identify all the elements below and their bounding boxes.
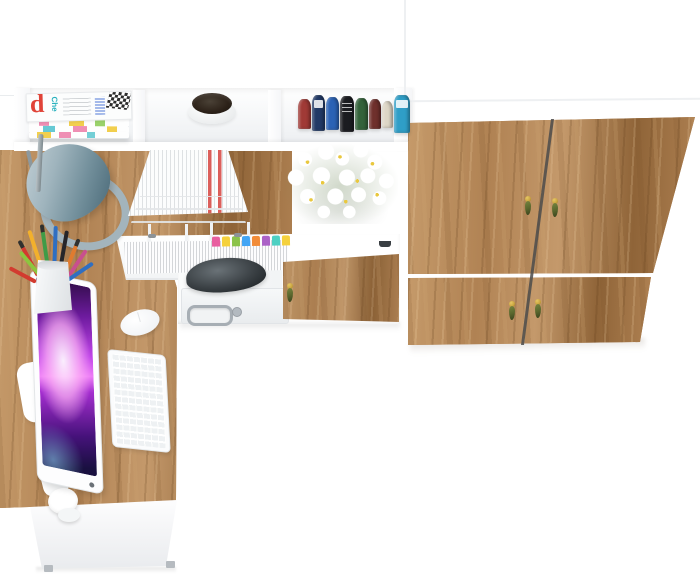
index-tab [212,237,220,247]
book [298,99,311,129]
daisy-bouquet [282,138,398,224]
shelf-peg [234,233,242,237]
shelf-divider [133,90,145,150]
monitor-stand-foot [58,508,80,522]
book [369,99,381,129]
book [312,95,326,131]
shelf-peg [148,234,156,238]
wire-document-tray [126,196,250,236]
magazine-page-edges [29,132,129,139]
book [355,98,368,130]
desk-foot [44,565,53,572]
wardrobe-door-handle [524,196,532,216]
index-tab [232,236,240,246]
hutch-top-panel [0,0,418,96]
cable-notch [379,241,391,247]
printer-handle [187,305,233,326]
shelf-divider [268,90,281,150]
handle-drop [535,304,541,318]
book [326,97,339,130]
magazine-cover-word: Che [50,96,59,111]
index-tab [242,236,250,246]
magazine-cover-textlines [63,98,91,116]
wardrobe-door-handle [534,299,542,319]
furniture-product-image: d Che [0,0,700,574]
index-tab [252,236,260,246]
potted-plant [192,93,232,114]
wardrobe-top-panel [404,0,700,124]
book [340,96,354,132]
index-tab [282,235,290,245]
keyboard [107,349,171,453]
magazine-cover-textlines [95,96,105,114]
magazine-stack: d Che [26,92,132,140]
index-tabs [212,235,290,248]
handle-drop [525,201,531,215]
panel-seam-line [404,0,406,96]
handle-drop [552,203,558,217]
desk-foot [166,561,175,568]
drawer-front [283,252,399,322]
pencil-cup [34,260,72,314]
magazine-cover: d Che [26,91,133,123]
book [382,101,394,128]
magazine-checker-pattern [106,91,132,110]
book-row [298,95,410,137]
index-tab [222,236,230,246]
index-tab [272,235,280,245]
wardrobe-upper-doors [408,117,700,275]
drawer-handle [286,283,294,303]
wardrobe-door-handle [551,198,559,218]
book [394,95,410,133]
printer-button [232,307,242,317]
index-tab [262,236,270,246]
magazine-cover-letter: d [30,91,45,119]
handle-drop [509,306,515,320]
handle-drop [287,288,293,302]
wardrobe-door-handle [508,301,516,321]
monitor-logo-dot [89,482,94,488]
